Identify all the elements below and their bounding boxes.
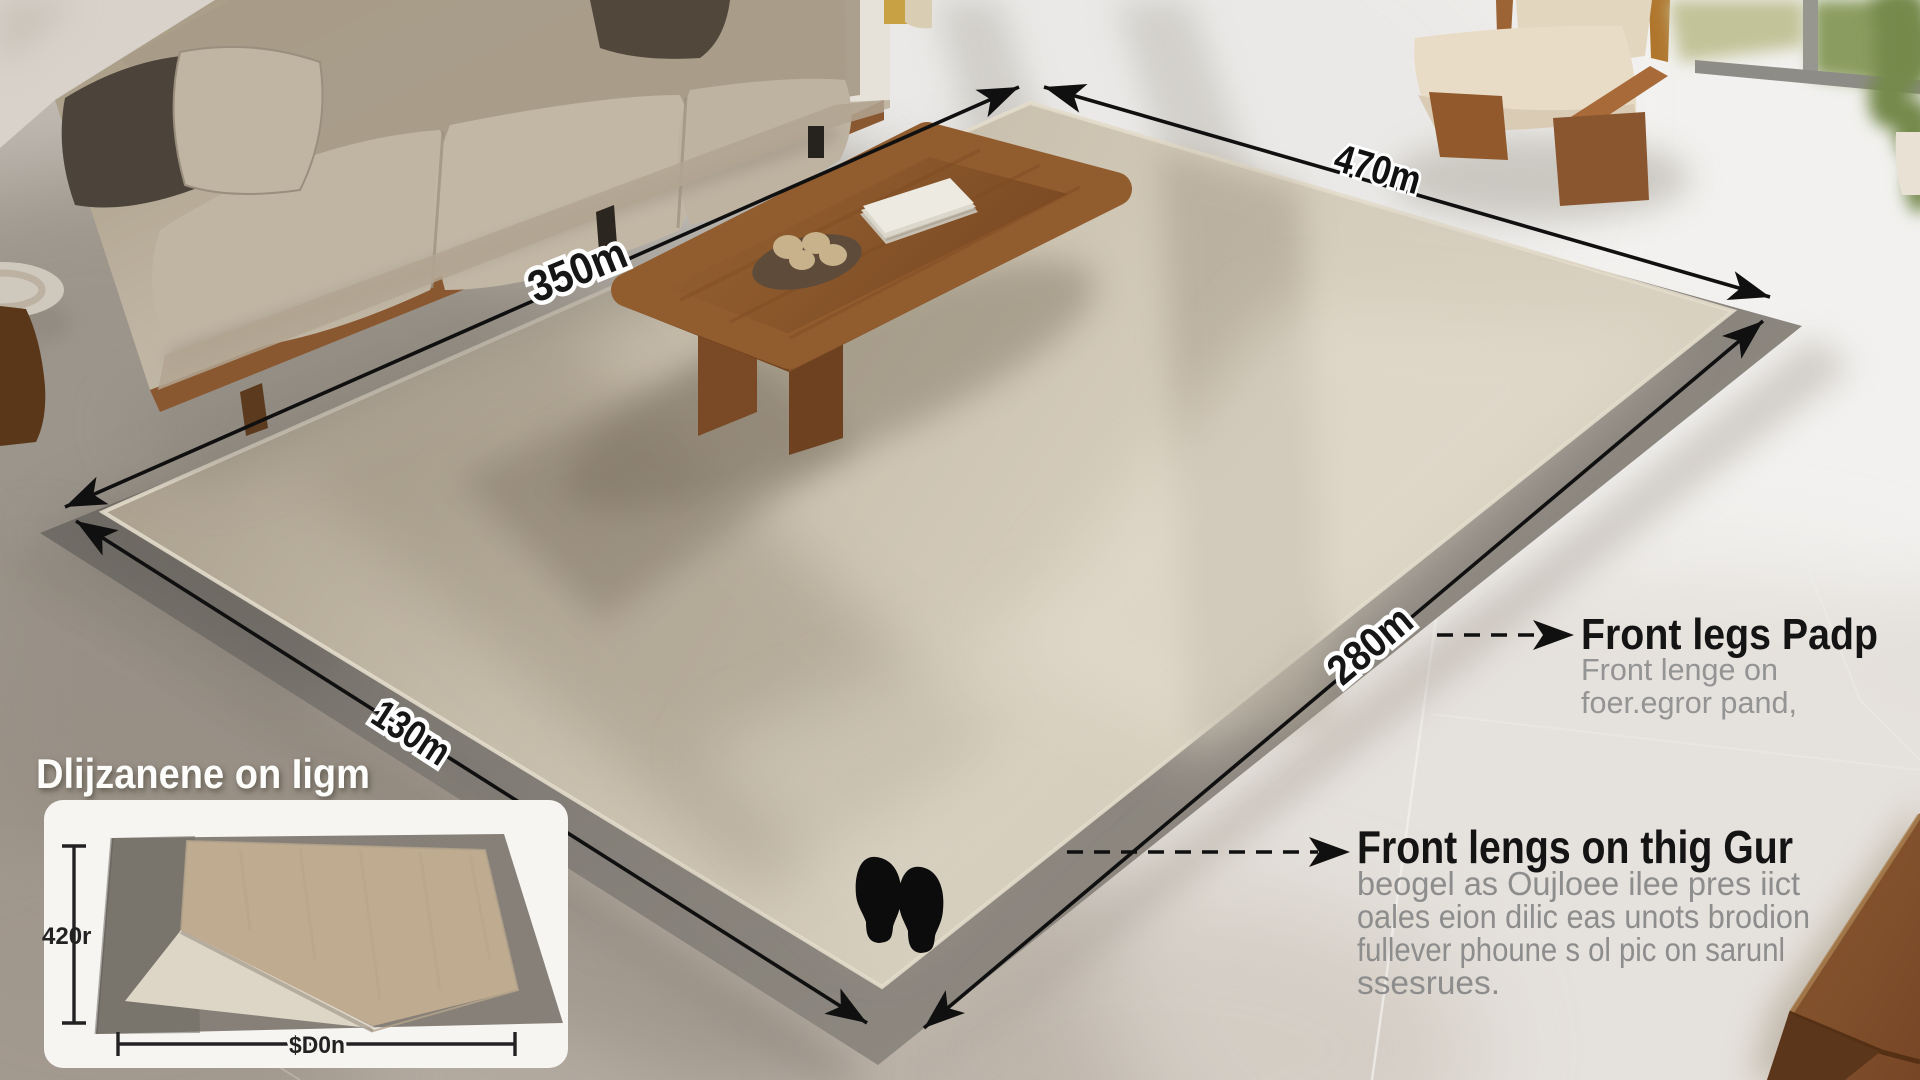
svg-text:$D0n: $D0n — [289, 1032, 345, 1059]
svg-text:oales eion dilic eas unots bro: oales eion dilic eas unots brodion — [1357, 898, 1810, 935]
svg-text:Dlijzanene on Iigm: Dlijzanene on Iigm — [36, 750, 370, 797]
svg-text:ssesrues.: ssesrues. — [1357, 964, 1500, 1001]
svg-text:fullever phoune s ol pic on sa: fullever phoune s ol pic on sarunl — [1357, 931, 1785, 968]
svg-text:420r: 420r — [42, 923, 91, 950]
svg-text:beogel as Oujloee ilee pres ii: beogel as Oujloee ilee pres iict — [1357, 865, 1800, 902]
svg-text:foer.egror pand,: foer.egror pand, — [1581, 685, 1797, 720]
svg-text:Front lenge on: Front lenge on — [1581, 652, 1778, 687]
